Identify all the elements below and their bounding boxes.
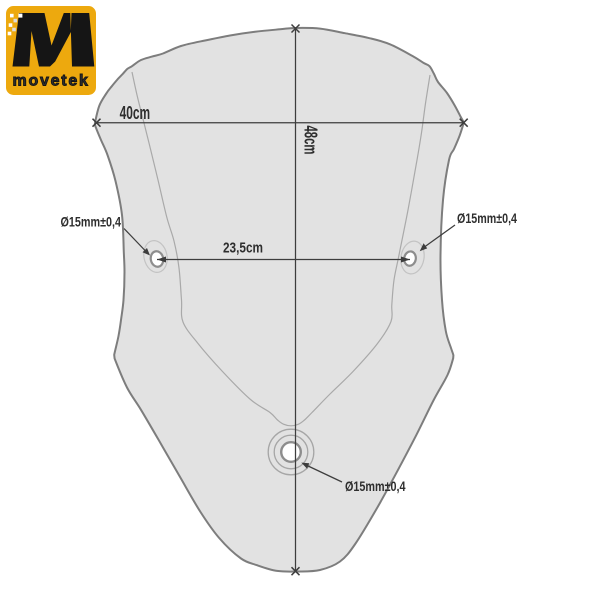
svg-text:Ø15mm±0,4: Ø15mm±0,4 <box>457 210 517 226</box>
svg-text:Ø15mm±0,4: Ø15mm±0,4 <box>61 214 122 230</box>
svg-text:movetek: movetek <box>13 73 90 90</box>
svg-text:48cm: 48cm <box>301 126 321 155</box>
svg-text:Ø15mm±0,4: Ø15mm±0,4 <box>345 478 406 494</box>
svg-text:40cm: 40cm <box>120 103 151 123</box>
svg-text:23,5cm: 23,5cm <box>223 240 263 257</box>
